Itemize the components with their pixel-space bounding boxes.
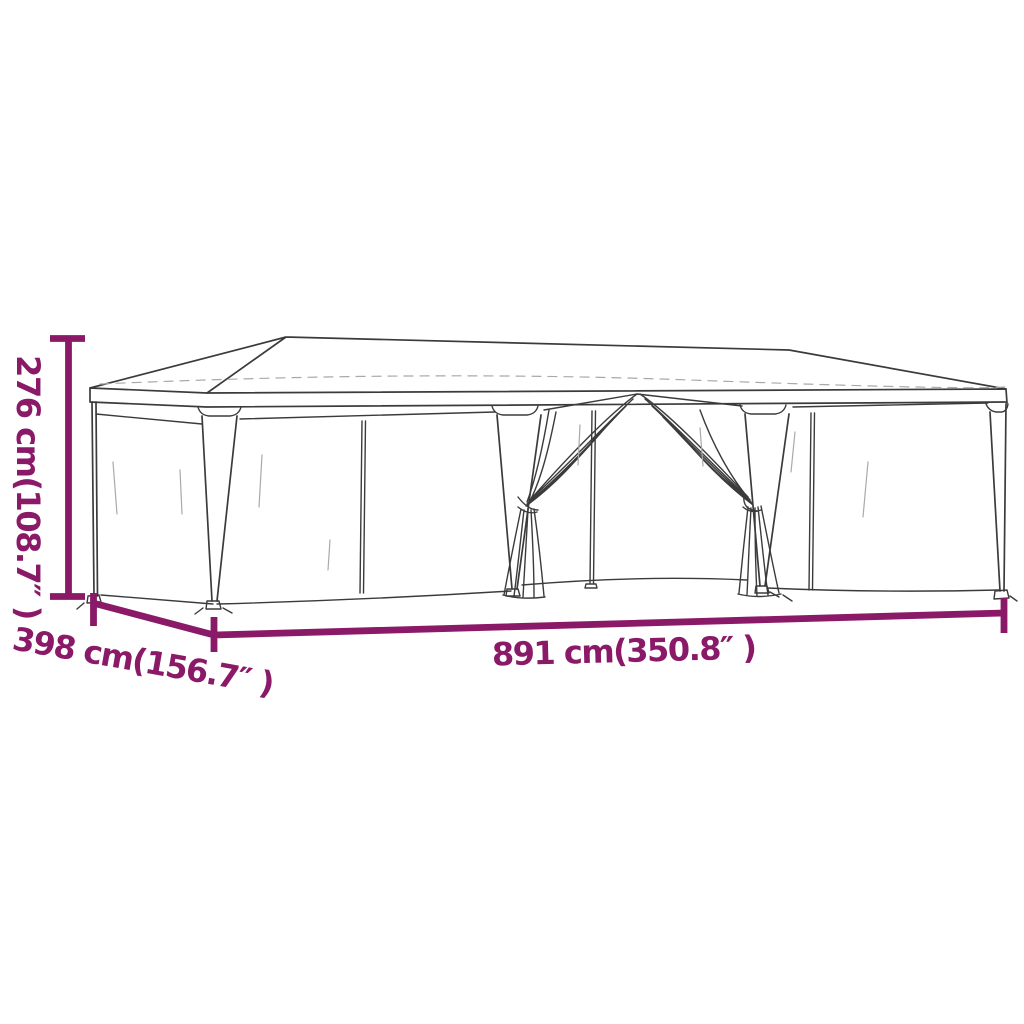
tent-wall-hems	[96, 394, 988, 424]
tent-eave-band	[90, 388, 1007, 407]
left-curtain	[503, 394, 637, 598]
roof-fold-dashed-line	[100, 376, 1005, 388]
right-curtain	[640, 394, 792, 601]
tent-wall-bottoms	[101, 578, 999, 604]
height-dimension-line	[50, 338, 85, 597]
tent-legs	[92, 402, 1006, 601]
tent-drawing	[77, 337, 1017, 614]
product-dimension-image: 276 cm(108.7″ ) 398 cm(156.7″ ) 891 cm(3…	[0, 0, 1024, 1024]
tent-roof	[90, 337, 1006, 393]
width-dimension-label: 891 cm(350.8″ )	[491, 629, 756, 674]
dimension-labels: 276 cm(108.7″ ) 398 cm(156.7″ ) 891 cm(3…	[9, 355, 756, 703]
height-dimension-label: 276 cm(108.7″ )	[9, 355, 47, 619]
diagram-canvas: 276 cm(108.7″ ) 398 cm(156.7″ ) 891 cm(3…	[0, 0, 1024, 1024]
